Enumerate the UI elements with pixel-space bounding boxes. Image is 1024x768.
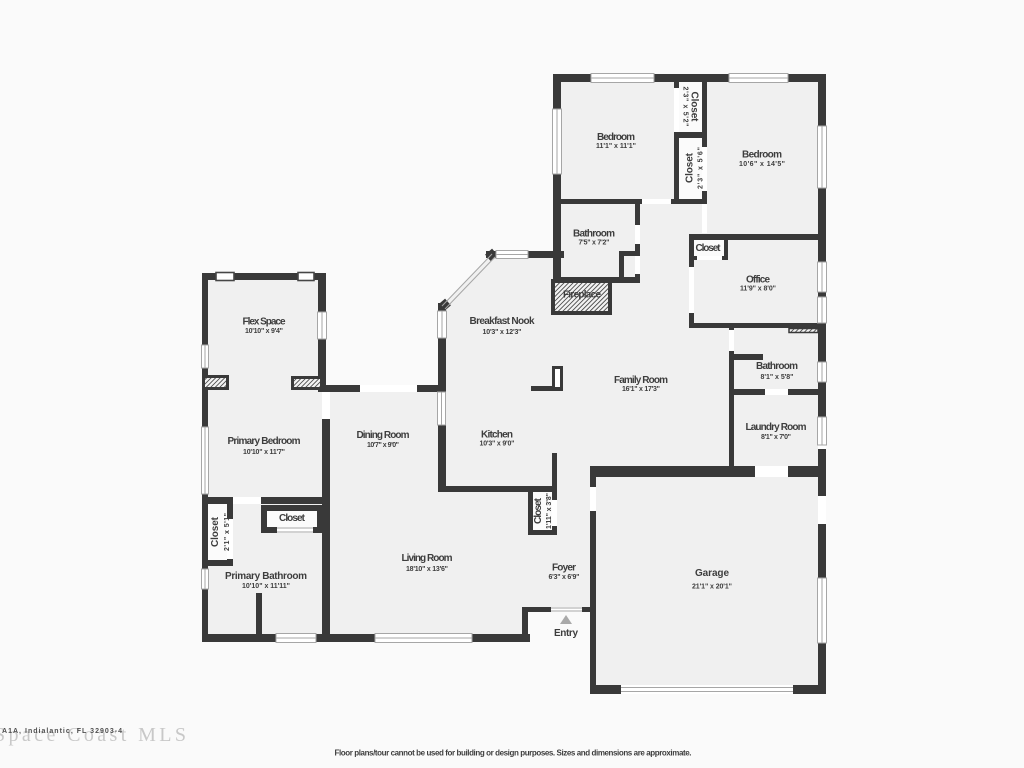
svg-text:11'1" x 11'1": 11'1" x 11'1" [596, 143, 636, 150]
svg-text:Closet: Closet [685, 152, 696, 183]
svg-text:Living Room: Living Room [402, 553, 453, 564]
svg-text:6'3" x 6'9": 6'3" x 6'9" [549, 574, 580, 581]
svg-text:Breakfast Nook: Breakfast Nook [470, 316, 535, 327]
svg-text:2'1" x 5'1": 2'1" x 5'1" [224, 513, 231, 551]
svg-text:Entry: Entry [554, 628, 578, 639]
svg-text:10'6" x 14'5": 10'6" x 14'5" [739, 161, 785, 168]
svg-text:1'11" x 3'8": 1'11" x 3'8" [546, 493, 553, 529]
svg-text:8'1" x 7'0": 8'1" x 7'0" [761, 434, 791, 441]
svg-text:A1A, Indialantic, FL 32903-4: A1A, Indialantic, FL 32903-4 [2, 728, 122, 735]
svg-text:Closet: Closet [696, 243, 722, 254]
svg-text:21'1" x 20'1": 21'1" x 20'1" [692, 584, 732, 591]
svg-text:10'7" x 9'0": 10'7" x 9'0" [367, 442, 399, 449]
svg-text:10'10" x 9'4": 10'10" x 9'4" [245, 328, 283, 335]
svg-text:Closet: Closet [279, 513, 306, 524]
svg-text:Primary Bedroom: Primary Bedroom [228, 436, 301, 447]
svg-text:Kitchen: Kitchen [481, 430, 513, 441]
svg-text:Fireplace: Fireplace [563, 290, 601, 301]
svg-text:Office: Office [746, 275, 770, 286]
svg-text:7'5" x 7'2": 7'5" x 7'2" [579, 240, 610, 247]
svg-text:Bathroom: Bathroom [573, 229, 615, 240]
svg-text:8'1" x 5'8": 8'1" x 5'8" [761, 374, 794, 381]
svg-text:2'3" x 5'2": 2'3" x 5'2" [682, 87, 689, 127]
svg-text:Closet: Closet [210, 516, 221, 547]
svg-text:Closet: Closet [533, 497, 544, 524]
svg-text:Bedroom: Bedroom [742, 150, 782, 161]
svg-text:11'9" x 8'0": 11'9" x 8'0" [740, 286, 776, 293]
svg-text:10'3" x 9'0": 10'3" x 9'0" [480, 441, 515, 448]
svg-text:Bathroom: Bathroom [756, 361, 798, 372]
svg-text:10'10" x 11'11": 10'10" x 11'11" [242, 583, 290, 590]
svg-text:Family Room: Family Room [614, 375, 668, 386]
svg-text:Foyer: Foyer [552, 563, 576, 574]
svg-text:Flex Space: Flex Space [243, 317, 286, 328]
svg-text:Garage: Garage [695, 568, 729, 579]
svg-text:16'1" x 17'3": 16'1" x 17'3" [622, 386, 660, 393]
svg-text:Bedroom: Bedroom [597, 132, 635, 143]
svg-text:Laundry Room: Laundry Room [746, 422, 807, 433]
svg-text:Floor plans/tour cannot be use: Floor plans/tour cannot be used for buil… [335, 749, 692, 758]
svg-text:2'3" x 5'6": 2'3" x 5'6" [698, 147, 705, 189]
svg-text:18'10" x 13'6": 18'10" x 13'6" [406, 566, 448, 573]
svg-text:Primary Bathroom: Primary Bathroom [225, 571, 307, 582]
svg-text:Dining Room: Dining Room [357, 430, 410, 441]
svg-text:10'3" x 12'3": 10'3" x 12'3" [483, 329, 522, 336]
svg-text:Closet: Closet [689, 92, 700, 123]
svg-text:10'10" x 11'7": 10'10" x 11'7" [243, 449, 285, 456]
